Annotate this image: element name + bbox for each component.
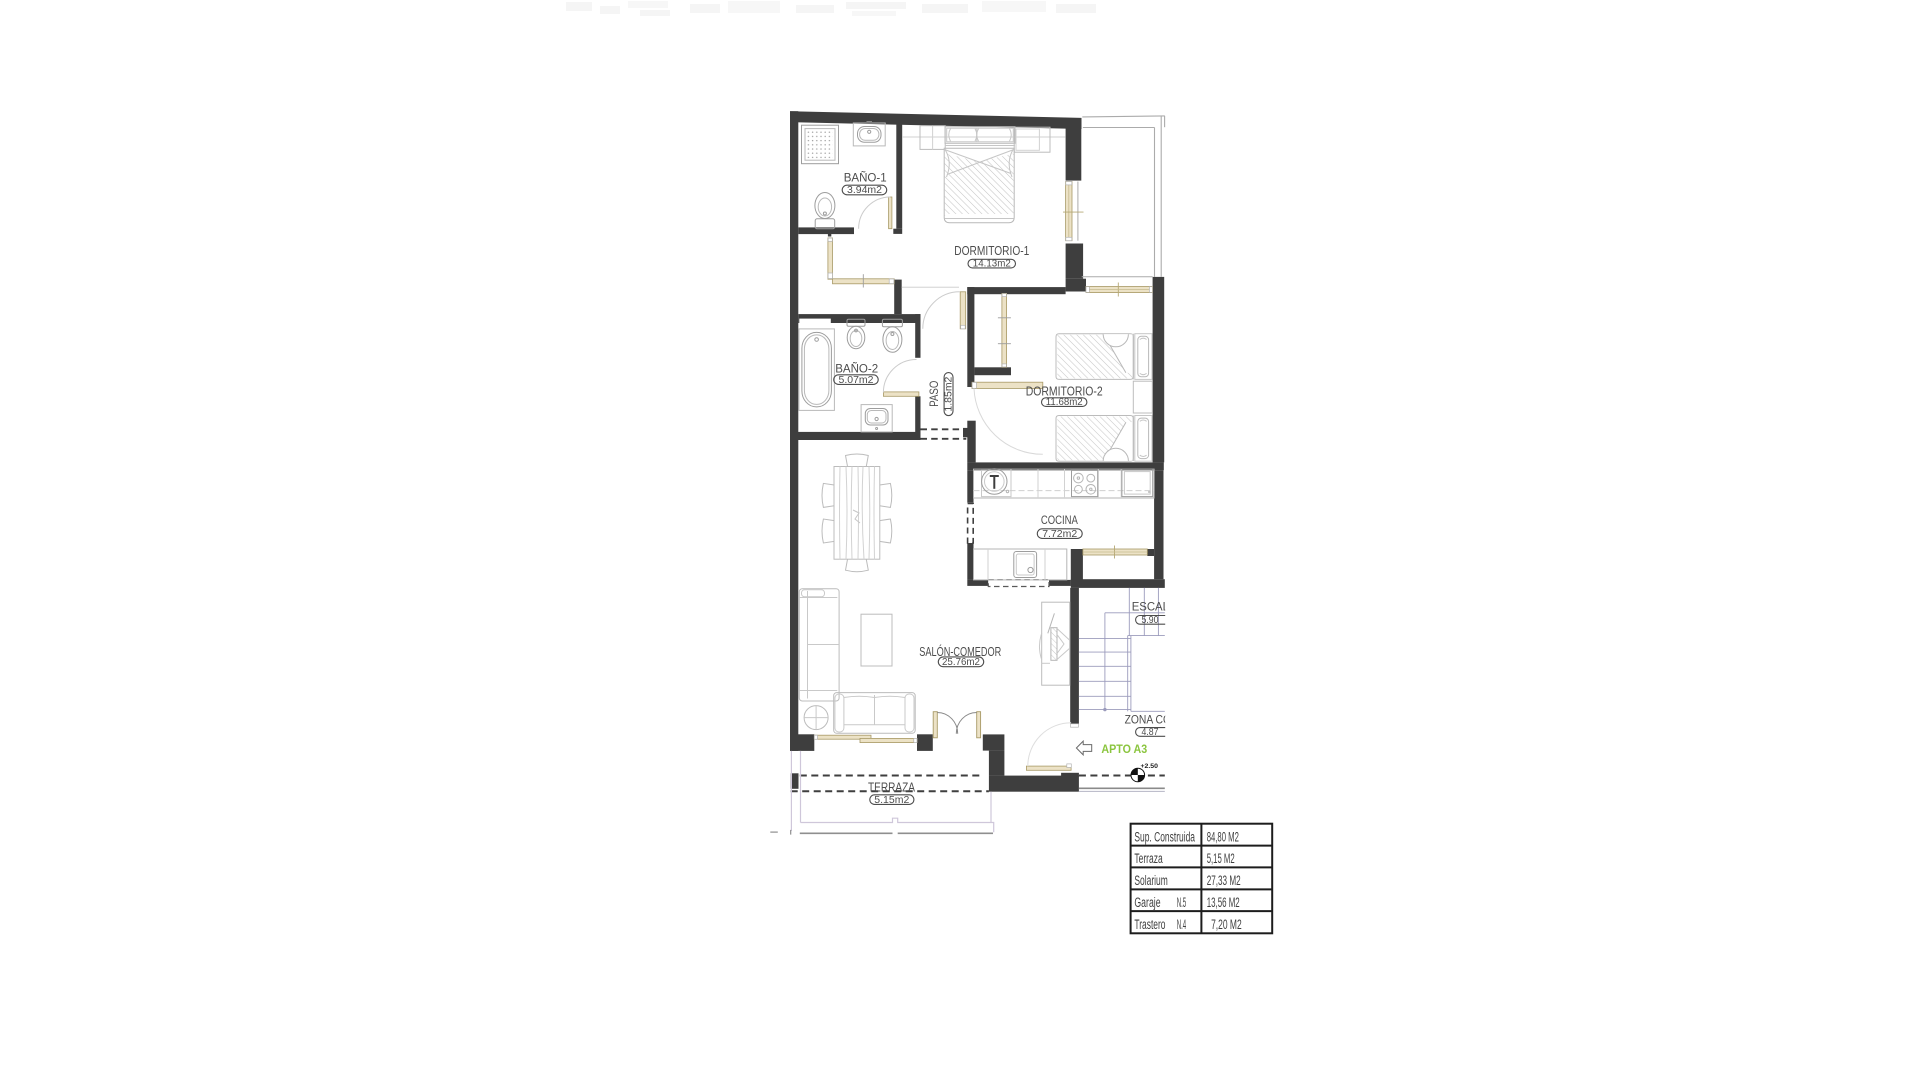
svg-text:11.68m2: 11.68m2 xyxy=(1046,397,1083,408)
svg-text:+2.50: +2.50 xyxy=(1141,763,1159,770)
svg-text:14.13m2: 14.13m2 xyxy=(973,258,1011,269)
svg-text:BAÑO-1: BAÑO-1 xyxy=(844,170,887,184)
svg-text:N.5: N.5 xyxy=(1177,895,1187,910)
svg-text:COCINA: COCINA xyxy=(1041,513,1078,527)
svg-text:5,15 M2: 5,15 M2 xyxy=(1207,851,1235,866)
svg-text:7,20 M2: 7,20 M2 xyxy=(1211,917,1242,932)
svg-text:DORMITORIO-1: DORMITORIO-1 xyxy=(954,244,1029,258)
svg-text:4.87: 4.87 xyxy=(1142,727,1159,738)
svg-text:PASO: PASO xyxy=(927,381,941,407)
svg-text:TERRAZA: TERRAZA xyxy=(868,780,916,794)
svg-text:25.76m2: 25.76m2 xyxy=(942,656,980,668)
svg-text:27,33 M2: 27,33 M2 xyxy=(1207,873,1241,888)
svg-text:5.90: 5.90 xyxy=(1142,615,1159,626)
svg-text:1.85m2: 1.85m2 xyxy=(943,376,954,411)
svg-text:7.72m2: 7.72m2 xyxy=(1042,528,1077,540)
svg-text:3.94m2: 3.94m2 xyxy=(847,184,882,196)
svg-text:13,56 M2: 13,56 M2 xyxy=(1207,895,1240,910)
svg-text:Trastero: Trastero xyxy=(1134,917,1165,932)
svg-text:84,80 M2: 84,80 M2 xyxy=(1207,829,1239,844)
svg-text:Terraza: Terraza xyxy=(1134,851,1163,866)
svg-text:Solarium: Solarium xyxy=(1134,873,1167,888)
svg-text:N.4: N.4 xyxy=(1177,917,1187,932)
svg-text:5.15m2: 5.15m2 xyxy=(874,794,909,806)
svg-text:APTO A3: APTO A3 xyxy=(1101,744,1147,756)
svg-text:Sup. Construida: Sup. Construida xyxy=(1134,829,1195,844)
svg-text:Garaje: Garaje xyxy=(1134,895,1160,910)
svg-text:5.07m2: 5.07m2 xyxy=(839,374,874,386)
